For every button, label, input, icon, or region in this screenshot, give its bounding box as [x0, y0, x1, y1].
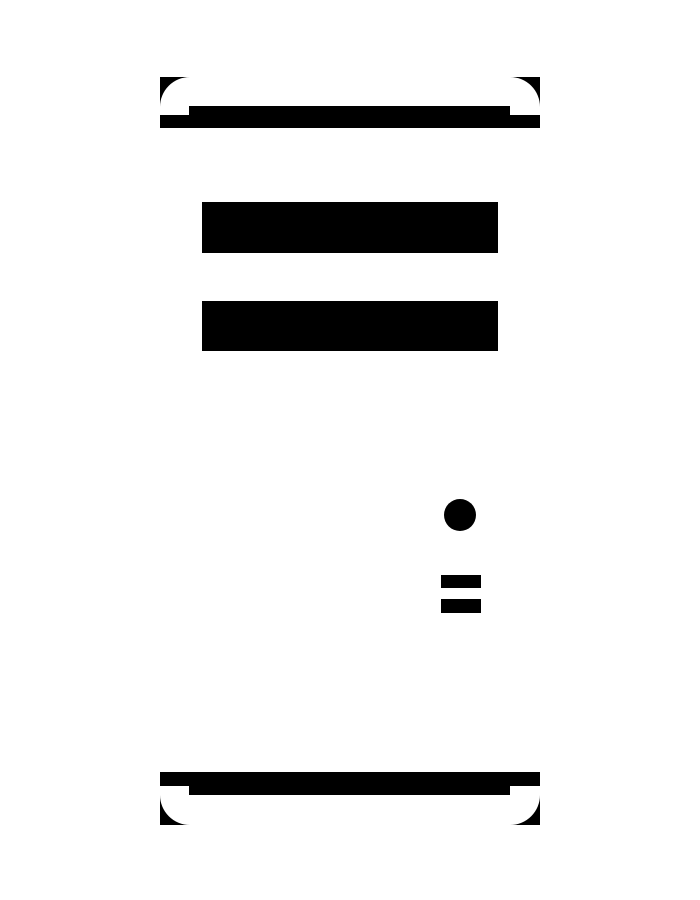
- top-left-corner-wedge: [160, 77, 190, 107]
- bottom-right-corner-wedge: [510, 795, 540, 825]
- top-band-inner-bar: [189, 106, 510, 115]
- drive-bay-1: [202, 202, 498, 253]
- drive-bay-2: [202, 301, 498, 351]
- bottom-band-inner-bar: [189, 786, 510, 795]
- computer-tower-icon: [0, 0, 700, 900]
- power-button-icon: [444, 499, 476, 531]
- bottom-band-outer-bar: [160, 772, 540, 786]
- vent-slot-1: [441, 575, 481, 588]
- vent-slot-2: [441, 599, 481, 613]
- top-right-corner-wedge: [510, 77, 540, 107]
- top-band-outer-bar: [160, 115, 540, 128]
- bottom-left-corner-wedge: [160, 795, 190, 825]
- canvas: [0, 0, 700, 900]
